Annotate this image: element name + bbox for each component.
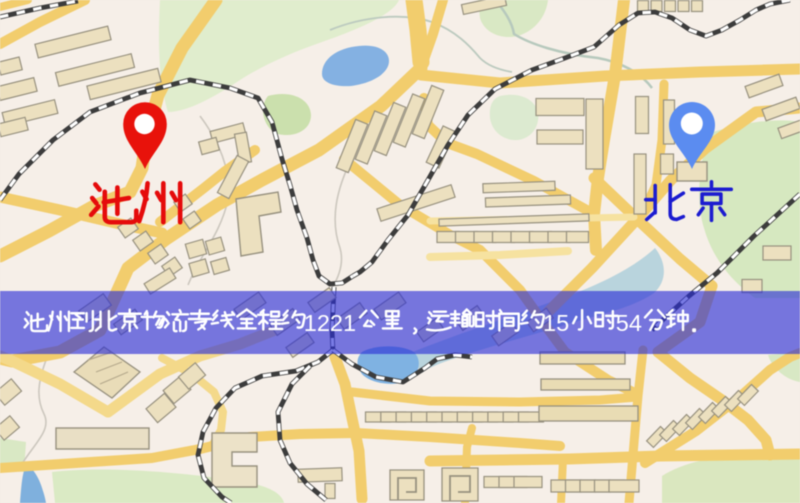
svg-text:15: 15 (543, 310, 569, 336)
svg-text:1221: 1221 (304, 310, 356, 336)
svg-text:54: 54 (616, 310, 642, 336)
